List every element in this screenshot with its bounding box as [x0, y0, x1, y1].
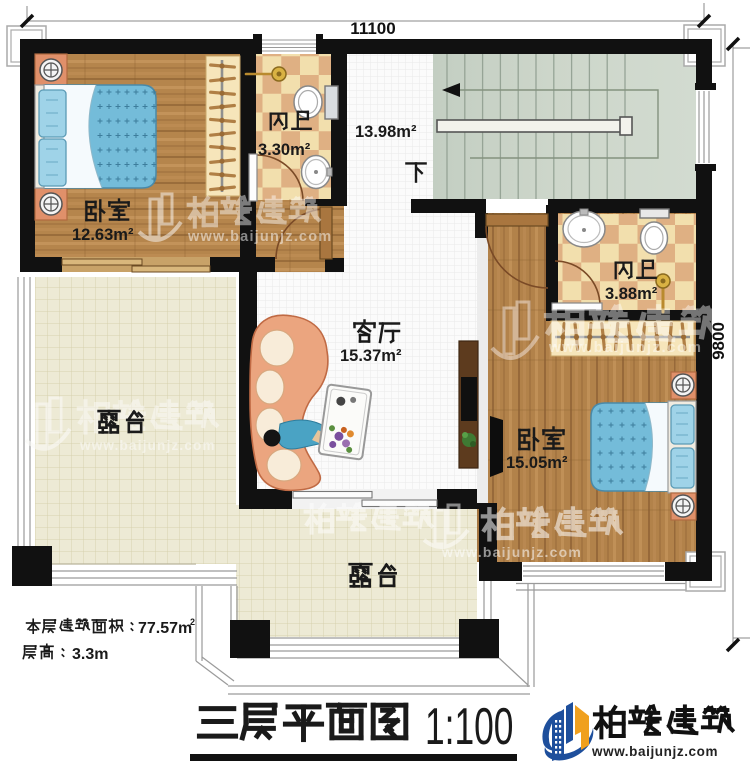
svg-text:2: 2 [190, 617, 195, 627]
svg-text:www.baijunjz.com: www.baijunjz.com [79, 438, 216, 453]
svg-text:15.37m²: 15.37m² [340, 347, 402, 365]
svg-text:3.30m²: 3.30m² [258, 141, 311, 159]
svg-text:13.98m²: 13.98m² [355, 123, 417, 141]
svg-text:1:100: 1:100 [425, 698, 513, 755]
svg-text:www.baijunjz.com: www.baijunjz.com [187, 229, 332, 245]
svg-text:15.05m²: 15.05m² [506, 454, 568, 472]
svg-text:3.88m²: 3.88m² [605, 285, 658, 303]
svg-text:9800: 9800 [709, 322, 728, 360]
svg-text:www.baijunjz.com: www.baijunjz.com [548, 339, 702, 356]
svg-text:11100: 11100 [350, 19, 395, 38]
svg-text:3.3m: 3.3m [72, 646, 108, 663]
svg-text:www.baijunjz.com: www.baijunjz.com [591, 744, 718, 759]
svg-text:12.63m²: 12.63m² [72, 226, 134, 244]
svg-text:www.baijunjz.com: www.baijunjz.com [441, 544, 582, 560]
svg-text:77.57m: 77.57m [138, 620, 192, 637]
